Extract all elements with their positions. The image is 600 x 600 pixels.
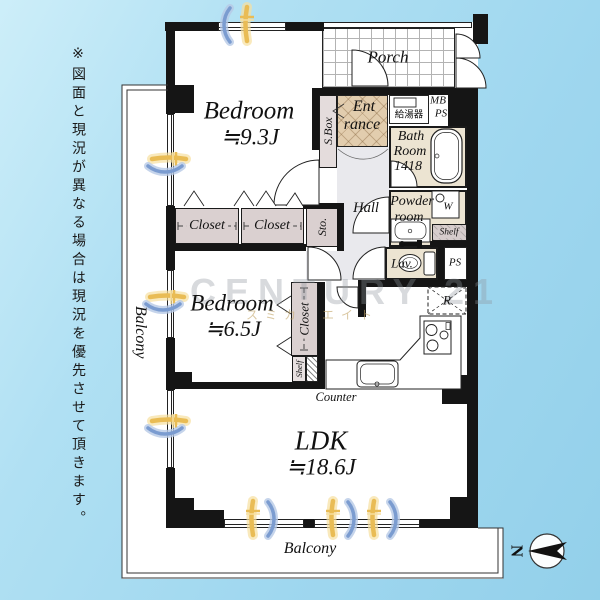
window-charm-left-1 [148,152,186,172]
floor-plan-page: N CENTURY 21 スミカ・エイト Porch Ent rance S.B… [0,0,600,600]
front-door-lower [456,58,486,88]
window-charm-left-2 [146,290,184,310]
bathroom-label-line2: Room [394,145,427,159]
window-charm-bottom-2 [326,501,354,536]
entrance-label-line1: Ent [353,99,375,115]
closet-c-label: Closet [298,299,311,338]
bathroom-label-line3: 1418 [394,160,422,174]
bathtub [431,129,462,183]
hall-label: Hall [353,201,379,216]
powder-room-label-line1: Powder [390,195,434,209]
disclaimer-note: ※図面と現況が異なる場合は現況を優先させて頂きます。 [68,46,88,574]
bedroom-second-name: Bedroom [190,292,273,315]
window-charm-left-3 [148,414,186,434]
storage-label: Sto. [316,218,328,236]
powder-room-label-line2: room [394,211,423,225]
entrance-label-line2: rance [344,117,380,133]
counter-label: Counter [316,391,357,404]
meter-box-label: MB [430,96,446,107]
compass: N [508,534,568,568]
front-door-upper [456,34,480,58]
balcony-bottom-label: Balcony [284,541,336,557]
water-heater-label: 給湯器 [395,110,424,120]
kitchen-counter [326,316,461,389]
washer-label: W [443,202,452,213]
porch-label: Porch [368,49,409,66]
water-heater-unit [394,98,416,107]
pipe-space-lower-label: PS [449,258,461,269]
window-charm-bottom-1 [246,501,274,536]
bedroom-main-name: Bedroom [204,99,295,124]
pipe-space-upper-label: PS [435,109,447,120]
ldk-size: ≒18.6J [286,456,356,479]
closet-a-label: Closet [186,219,228,233]
powder-shelf-label: Shelf [438,228,461,238]
ldk-name: LDK [295,428,348,455]
bedroom-main-size: ≒9.3J [221,126,279,149]
window-charm-top [224,7,254,42]
bedroom-shelf-label: Shelf [295,361,304,378]
bathroom-label-line1: Bath [398,130,424,144]
bedroom-second-size: ≒6.5J [205,318,261,340]
balcony-left-label: Balcony [131,306,149,358]
entrance-step-line [338,149,388,159]
shoe-box-label: S.Box [322,117,334,145]
window-charm-bottom-3 [367,501,396,536]
lavatory-label: Lav. [391,257,413,270]
compass-north-label: N [508,545,527,558]
refrigerator-label: R [443,294,451,307]
closet-b-label: Closet [251,219,293,233]
